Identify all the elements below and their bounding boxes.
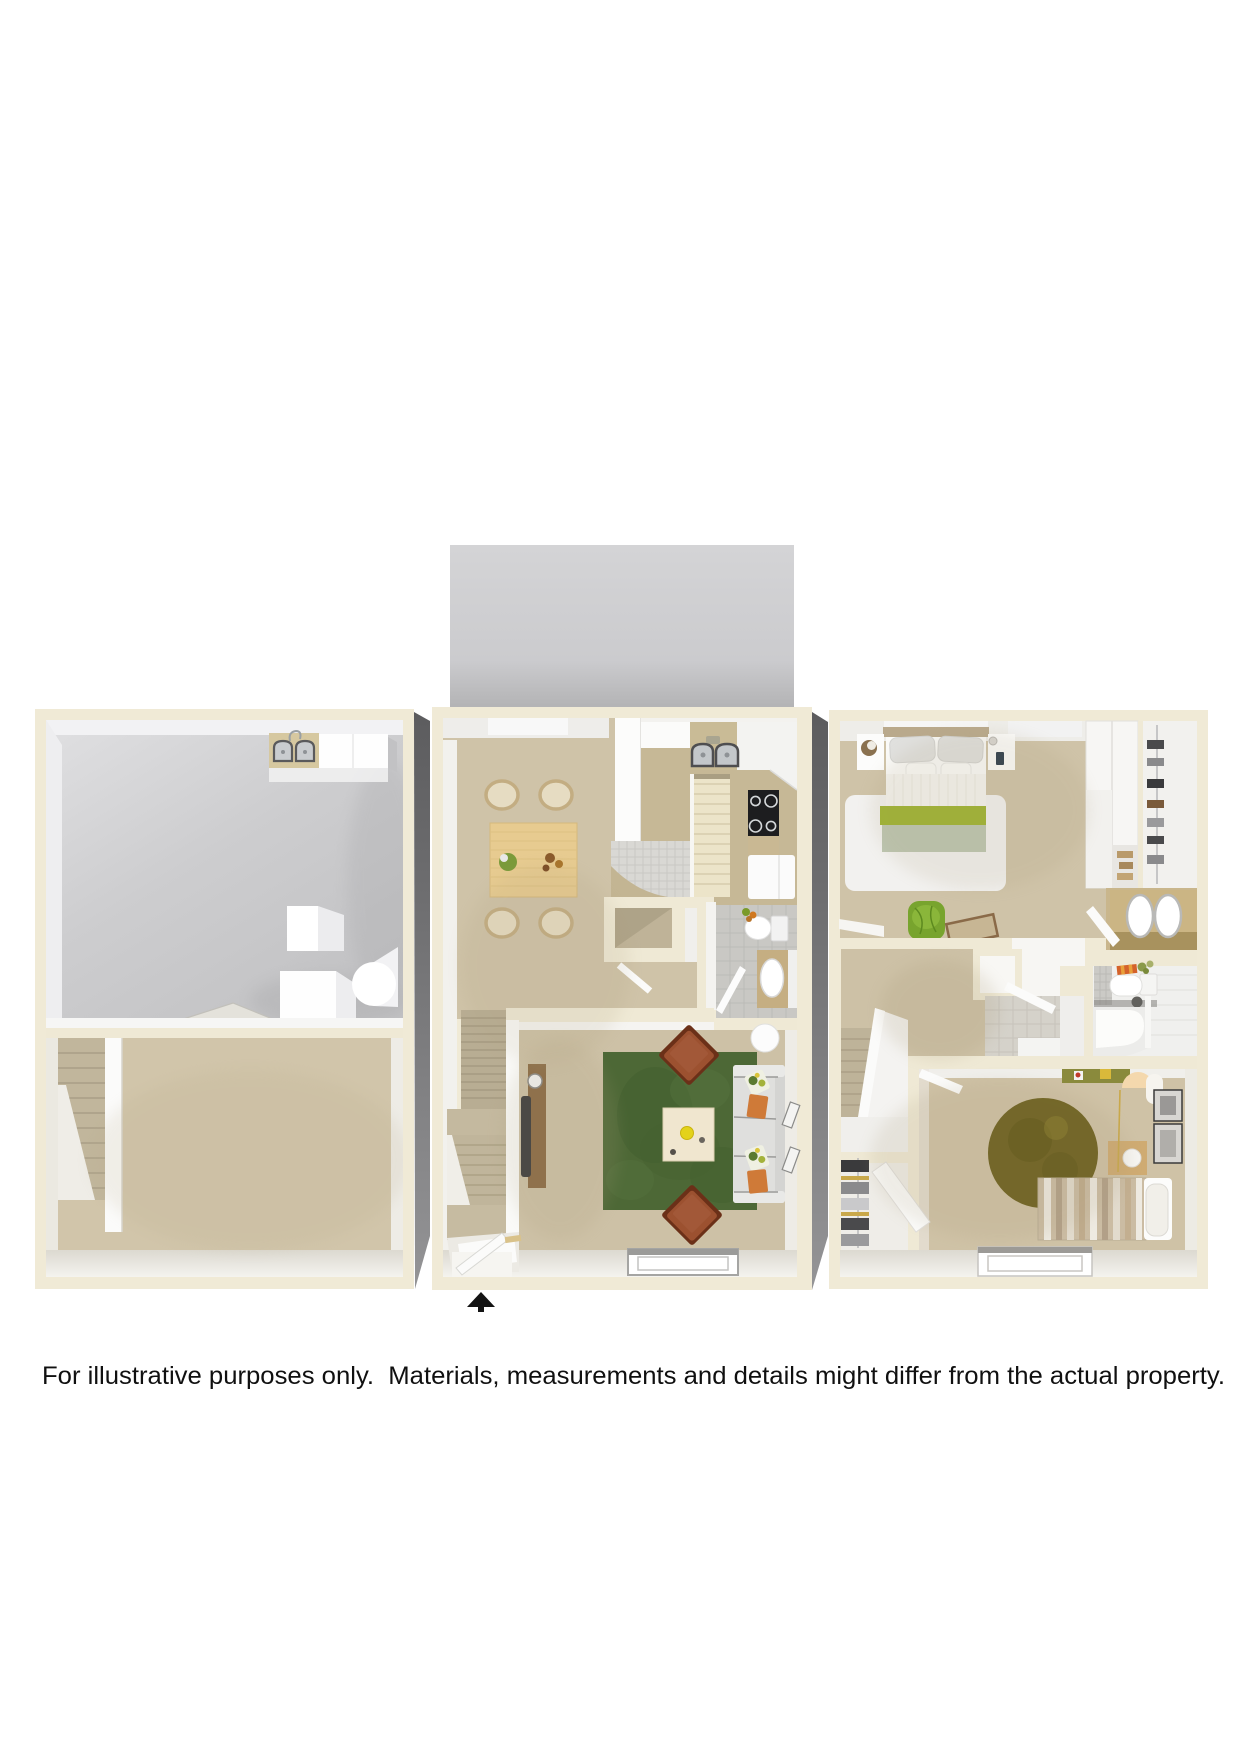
svg-text:For illustrative purposes only: For illustrative purposes only. Material… bbox=[42, 1362, 1225, 1390]
